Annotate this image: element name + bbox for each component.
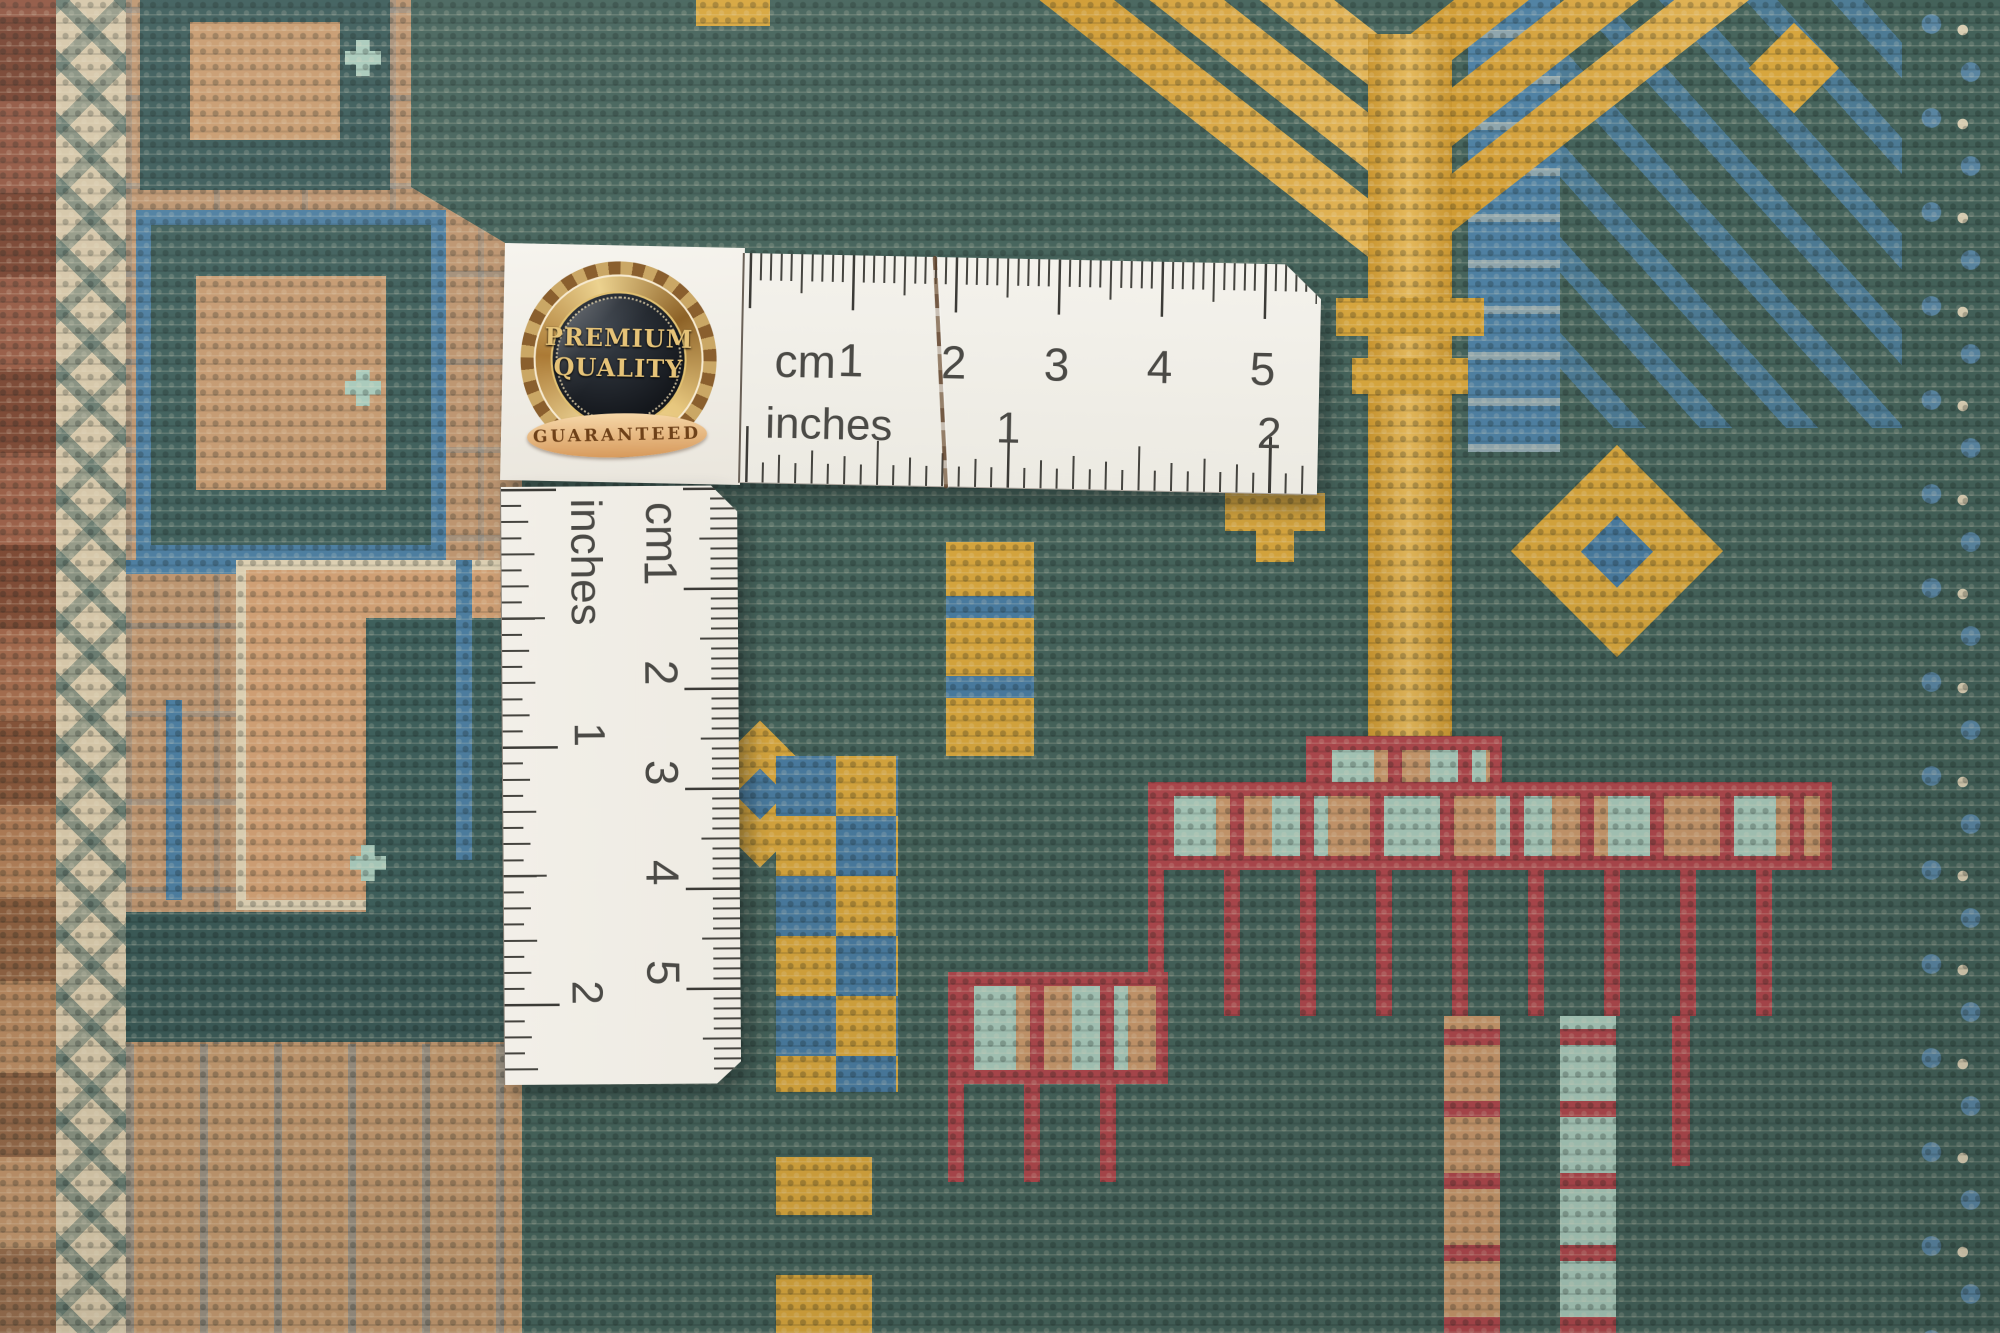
rug-photo-scene: PREMIUM QUALITY GUARANTEED cm 1 2 3 4 5 …: [0, 0, 2000, 1333]
comb-tooth: [1672, 1016, 1690, 1166]
inch-number-2: 2: [1239, 411, 1300, 456]
cm-number-4: 4: [1129, 343, 1190, 390]
inch-number-1: 1: [567, 722, 611, 747]
left-border-zigzag: [56, 0, 128, 1333]
trunk-step: [1336, 298, 1484, 336]
gold-block-column: [776, 1100, 872, 1333]
inches-label: inches: [563, 498, 608, 625]
flower-center: [1581, 515, 1653, 587]
comb-teeth: [948, 1082, 1168, 1182]
cm-number-2: 2: [638, 660, 684, 686]
inches-label: inches: [765, 401, 893, 448]
mint-cross: [350, 845, 386, 881]
comb-cells: [1318, 750, 1490, 786]
tree-trunk: [1368, 34, 1452, 778]
horizontal-ruler-face: cm 1 2 3 4 5 inches 1 2: [738, 253, 1322, 495]
trunk-step: [1352, 358, 1468, 394]
cm-number-5: 5: [1232, 345, 1293, 392]
comb-column: [1560, 1016, 1616, 1333]
left-border-rust: [0, 0, 58, 1333]
ribbon-text: GUARANTEED: [533, 423, 702, 447]
teal-band: [126, 912, 522, 1042]
rust-border-blocks: [0, 0, 58, 1333]
mint-cross: [345, 370, 381, 406]
inch-number-1: 1: [978, 406, 1039, 451]
seal-title-line1: PREMIUM: [521, 321, 718, 354]
mint-cross: [345, 40, 381, 76]
cm-number-4: 4: [640, 860, 686, 886]
comb-cells: [960, 986, 1156, 1070]
inch-scale-inch-ticks: [501, 489, 560, 1077]
cm-number-3: 3: [1026, 341, 1087, 388]
blue-bar: [166, 700, 182, 900]
right-border-scrolls: [1902, 0, 2000, 1333]
tan-block: [190, 22, 340, 140]
comb-teeth: [1148, 866, 1832, 1016]
cm-number-3: 3: [639, 760, 685, 786]
cm-scale-cm-ticks: [683, 487, 741, 1075]
inch-number-2: 2: [564, 980, 608, 1005]
cm-label: cm: [639, 502, 685, 564]
tan-band: [126, 1044, 522, 1333]
gold-square-stack: [946, 542, 1034, 756]
vertical-ruler-face: cm 1 2 3 4 5 inches 1 2: [500, 485, 741, 1085]
horizontal-ruler: PREMIUM QUALITY GUARANTEED cm 1 2 3 4 5 …: [500, 243, 1322, 500]
ruler-badge-label: PREMIUM QUALITY GUARANTEED: [500, 243, 745, 485]
cm-number-1: 1: [820, 337, 881, 384]
blue-bar: [456, 560, 472, 860]
cm-number-2: 2: [923, 339, 984, 386]
red-comb-small: [948, 972, 1168, 1084]
premium-quality-seal: PREMIUM QUALITY GUARANTEED: [519, 259, 719, 459]
red-comb-bar: [1148, 782, 1832, 870]
vertical-ruler: cm 1 2 3 4 5 inches 1 2: [500, 485, 741, 1085]
gold-flower: [1511, 445, 1723, 657]
cm-number-5: 5: [640, 960, 686, 986]
comb-column: [1444, 1016, 1500, 1333]
teal-block: [366, 618, 522, 914]
medallion-panel: [126, 0, 522, 1333]
cm-number-1: 1: [638, 560, 684, 586]
cm-scale-cm-ticks: [749, 253, 1318, 320]
comb-cells: [1160, 796, 1820, 856]
gold-blue-checker-column: [776, 756, 898, 1092]
carpet-photo: [0, 0, 2000, 1333]
gold-fleck: [696, 0, 770, 26]
